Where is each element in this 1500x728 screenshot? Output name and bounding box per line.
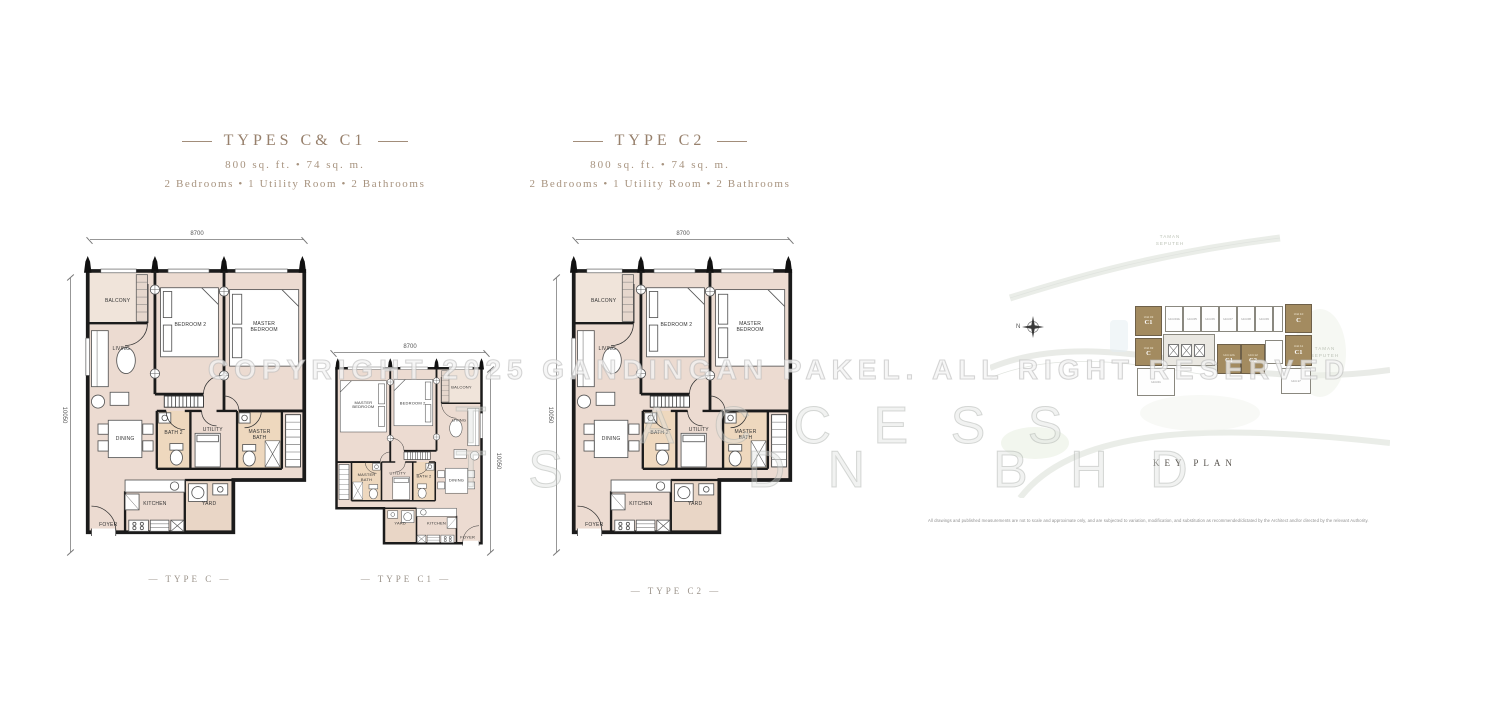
- dimension-value: 8700: [401, 344, 418, 350]
- header-type-c2: TYPE C2 800 sq. ft. • 74 sq. m. 2 Bedroo…: [460, 132, 860, 190]
- header-config: 2 Bedrooms • 1 Utility Room • 2 Bathroom…: [460, 178, 860, 190]
- floorplan-sheet: { "headers": { "c": { "title": "TYPES C&…: [0, 0, 1500, 728]
- room-label-yard: YARD: [202, 501, 216, 507]
- room-label-foyer: FOYER: [460, 536, 475, 541]
- room-label-dining: DINING: [116, 436, 135, 442]
- room-label-master-bedroom: MASTER BEDROOM: [732, 321, 768, 333]
- room-label-yard: YARD: [394, 522, 406, 527]
- watermark-letters-row2: T S D N B H D: [455, 440, 1202, 500]
- plan-type-label: — TYPE C2 —: [546, 586, 806, 596]
- copyright-watermark: COPYRIGHT 2025 GANDINGAN PAKEL. ALL RIGH…: [208, 354, 1350, 386]
- room-label-kitchen: KITCHEN: [427, 522, 446, 527]
- header-title: TYPES C& C1: [224, 132, 367, 150]
- keyplan-unit: Unit 07: [1219, 306, 1237, 332]
- room-label-bath2: BATH 2: [417, 474, 432, 479]
- header-title: TYPE C2: [615, 132, 706, 150]
- room-label-living: LIVING: [112, 346, 130, 352]
- keyplan-unit: Unit 03A: [1165, 306, 1183, 332]
- room-label-foyer: FOYER: [99, 522, 117, 528]
- dimension-top: 8700: [576, 239, 790, 240]
- room-label-master-bath: MASTER BATH: [242, 429, 278, 441]
- north-label: N: [1016, 324, 1020, 330]
- keyplan-unit: Unit 09: [1255, 306, 1273, 332]
- title-rule-left: [182, 141, 212, 142]
- title-rule-left: [573, 141, 603, 142]
- north-compass: N: [1016, 316, 1044, 338]
- room-label-yard: YARD: [688, 501, 702, 507]
- room-label-living: LIVING: [598, 346, 616, 352]
- room-label-master-bedroom: MASTER BEDROOM: [246, 321, 282, 333]
- keyplan-unit: Unit 06: [1201, 306, 1219, 332]
- room-label-foyer: FOYER: [585, 522, 603, 528]
- dimension-top: 8700: [90, 239, 304, 240]
- disclaimer-text: All drawings and published measurements …: [928, 518, 1414, 523]
- room-label-master-bedroom: MASTER BEDROOM: [349, 401, 377, 411]
- floorplan-type-c: 8700 10050 BALCONY LIVING BEDROOM 2 MAST…: [60, 230, 320, 590]
- compass-icon: [1022, 316, 1044, 338]
- area-label-top: TAMAN SEPUTEH: [1140, 234, 1200, 248]
- header-area: 800 sq. ft. • 74 sq. m.: [95, 159, 495, 171]
- header-area: 800 sq. ft. • 74 sq. m.: [460, 159, 860, 171]
- room-label-bath2: BATH 2: [164, 430, 182, 436]
- title-rule-right: [378, 141, 408, 142]
- dimension-top: 8700: [334, 352, 486, 353]
- plan-type-label: — TYPE C1 —: [326, 574, 486, 584]
- room-label-kitchen: KITCHEN: [629, 501, 652, 507]
- room-label-bedroom2: BEDROOM 2: [660, 322, 692, 328]
- room-label-utility: UTILITY: [203, 427, 223, 433]
- dimension-side: 10050: [70, 278, 71, 552]
- keyplan-unit: Unit 05: [1183, 306, 1201, 332]
- room-label-balcony: BALCONY: [591, 298, 616, 304]
- room-label-master-bath: MASTER BATH: [353, 473, 381, 483]
- header-types-c-c1: TYPES C& C1 800 sq. ft. • 74 sq. m. 2 Be…: [95, 132, 495, 190]
- keyplan-unit: Unit 08: [1237, 306, 1255, 332]
- header-config: 2 Bedrooms • 1 Utility Room • 2 Bathroom…: [95, 178, 495, 190]
- room-label-bedroom2: BEDROOM 2: [174, 322, 206, 328]
- keyplan-corridor: [1273, 306, 1283, 332]
- room-label-utility: UTILITY: [390, 472, 406, 477]
- unit-type: C: [1296, 317, 1301, 324]
- unit-type: C1: [1145, 319, 1153, 326]
- room-label-bedroom2: BEDROOM 2: [400, 402, 426, 407]
- room-label-balcony: BALCONY: [105, 298, 130, 304]
- title-rule-right: [717, 141, 747, 142]
- keyplan-unit-c1: Unit 03 C1: [1135, 306, 1162, 336]
- building-footprint: Unit 03 C1 Unit 02 C Unit 03A Unit 05 Un…: [1135, 300, 1315, 405]
- dimension-value: 8700: [188, 231, 205, 237]
- room-label-balcony: BALCONY: [451, 386, 472, 391]
- keyplan-unit-c: Unit 10 C: [1285, 304, 1312, 333]
- plan-type-label: — TYPE C —: [60, 574, 320, 584]
- room-label-kitchen: KITCHEN: [143, 501, 166, 507]
- dimension-value: 8700: [674, 231, 691, 237]
- dimension-value: 10050: [61, 405, 67, 426]
